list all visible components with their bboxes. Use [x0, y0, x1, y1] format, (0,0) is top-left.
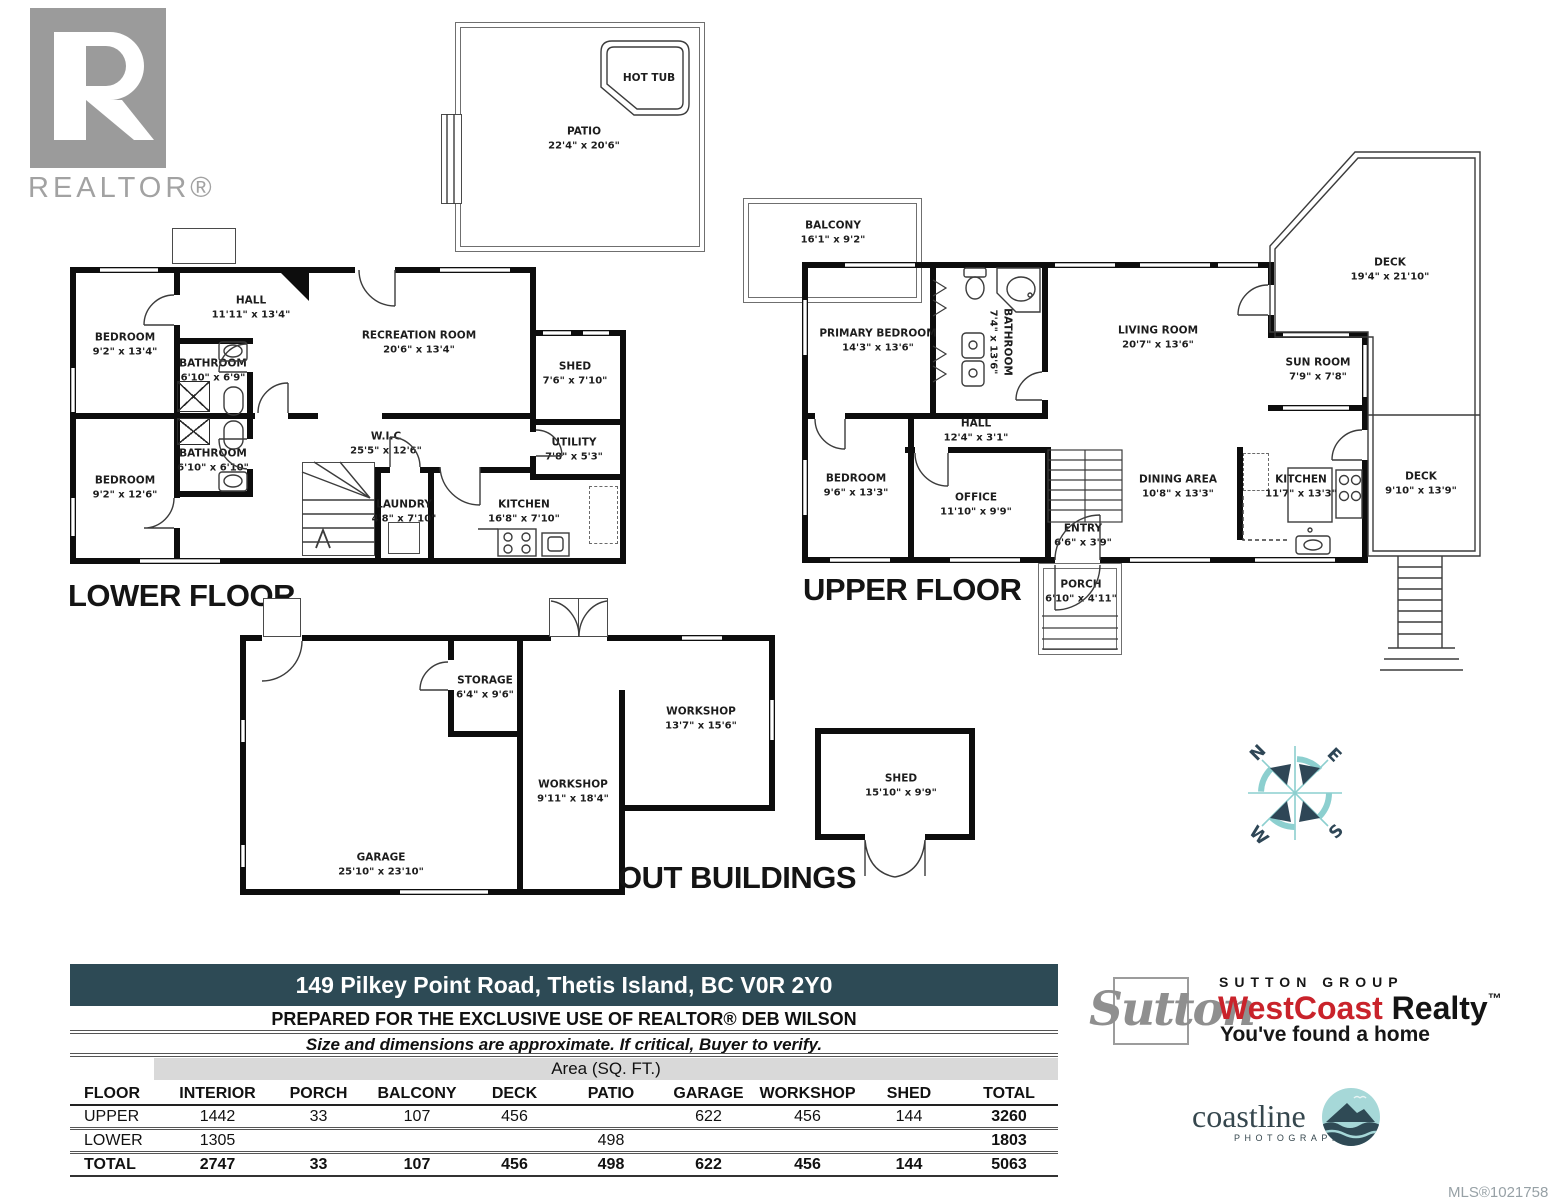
rule	[70, 1033, 1058, 1034]
rule	[70, 1053, 1058, 1054]
prepared-for-line: PREPARED FOR THE EXCLUSIVE USE OF REALTO…	[70, 1009, 1058, 1030]
coastline-wordmark: coastline	[1192, 1098, 1306, 1135]
area-table: FLOOR INTERIOR PORCH BALCONY DECK PATIO …	[70, 1083, 1058, 1177]
rule	[70, 1056, 1058, 1057]
coastline-logo-icon	[1318, 1086, 1384, 1150]
area-table-header: FLOOR INTERIOR PORCH BALCONY DECK PATIO …	[70, 1083, 1058, 1106]
sutton-tagline: You've found a home	[1220, 1023, 1430, 1047]
area-table-title: Area (SQ. FT.)	[154, 1058, 1058, 1080]
table-row-upper: UPPER 1442 33 107 456 622 456 144 3260	[70, 1106, 1058, 1130]
table-row-lower: LOWER 1305 498 1803	[70, 1130, 1058, 1154]
rule	[70, 1030, 1058, 1031]
westcoast-realty-wordmark: WestCoast Realty™	[1218, 990, 1502, 1027]
sutton-group-wordmark: SUTTON GROUP	[1219, 974, 1404, 990]
address-bar: 149 Pilkey Point Road, Thetis Island, BC…	[70, 964, 1058, 1006]
table-row-total: TOTAL 2747 33 107 456 498 622 456 144 50…	[70, 1154, 1058, 1177]
mls-number: MLS®1021758	[1448, 1184, 1548, 1200]
realtor-name: DEB WILSON	[742, 1009, 857, 1029]
floor-plan-sheet: REALTOR® PATIO 22'4" x 20'6" HOT TUB	[0, 0, 1553, 1200]
disclaimer-line: Size and dimensions are approximate. If …	[70, 1035, 1058, 1055]
